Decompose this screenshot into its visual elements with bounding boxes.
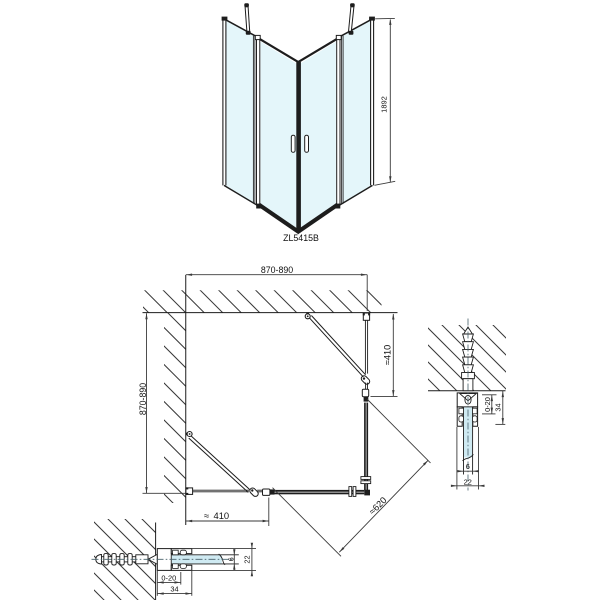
svg-text:6: 6 <box>227 557 236 561</box>
svg-text:34: 34 <box>494 403 503 411</box>
svg-text:1892: 1892 <box>380 96 389 113</box>
svg-text:ZL5415B: ZL5415B <box>283 233 319 243</box>
svg-text:34: 34 <box>170 585 178 594</box>
svg-text:6: 6 <box>466 462 470 471</box>
svg-text:0-20: 0-20 <box>483 397 492 412</box>
svg-text:870-890: 870-890 <box>261 265 293 275</box>
svg-text:22: 22 <box>243 555 252 563</box>
svg-text:0-20: 0-20 <box>161 574 176 583</box>
svg-text:22: 22 <box>464 478 472 487</box>
svg-text:≈410: ≈410 <box>383 345 393 365</box>
svg-text:≈ 410: ≈ 410 <box>204 510 229 521</box>
svg-text:870-890: 870-890 <box>138 383 148 415</box>
